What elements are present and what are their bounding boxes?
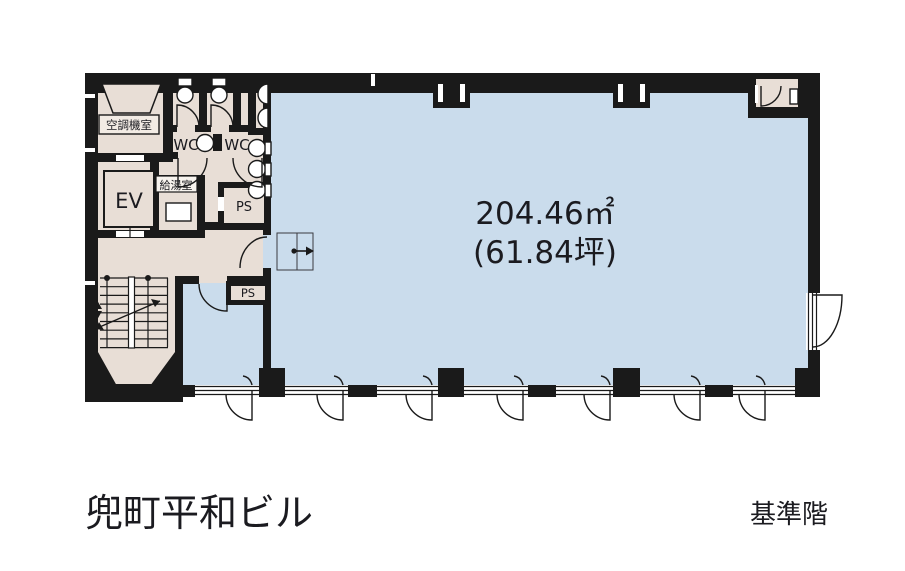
floorplan-page: 空調機室 EV 給湯室 WC WC PS PS 204.46㎡ (61.84坪)… [0,0,905,571]
wall-sink-stub [213,134,222,151]
floor-type-label: 基準階 [750,500,828,530]
label-kitchenette: 給湯室 [160,178,193,192]
wall-extension-top-left [175,276,199,284]
elevator-door-slot-top [116,155,144,161]
toilet-tank [265,184,271,197]
toilet-bowl [249,182,266,199]
wall-wc-front1 [163,125,177,132]
wall-wc-front2 [195,125,211,132]
leftwall-joint [85,148,95,152]
stair-newel-dot [104,275,110,281]
column-bottom-1 [438,368,464,397]
label-ps-upper: PS [236,200,252,215]
column-bottom-2 [613,368,640,397]
wall-right [808,93,820,397]
mullion-3 [705,385,733,397]
building-name: 兜町平和ビル [85,491,313,535]
toilet-bowl [249,161,266,178]
toilet-tank [265,163,271,176]
toilet-tank [212,78,226,86]
toilet-bowl [211,87,227,103]
topwall-joint [371,74,375,86]
wall-wcright-left [248,93,256,132]
mullion-2 [528,385,556,397]
ps-upper-slit [218,197,224,211]
wall-bottom-left-end [183,385,195,397]
pillar-slit [640,84,645,102]
alcove-wall-left [748,79,756,107]
alcove-wall-bottom [748,107,820,118]
wall-stairs-right [175,276,183,386]
alcove-wall-right [798,93,808,118]
column-extension-junction [259,368,285,397]
leftwall-joint [85,281,95,285]
pillar-slit [438,84,443,102]
label-ps-lower: PS [241,286,255,300]
right-window [806,293,820,350]
alcove-fixture [790,89,798,104]
kitchenette-sink [166,203,191,221]
mullion-1 [348,385,377,397]
stair-newel-dot [145,275,151,281]
wall-wc-front3 [229,125,248,132]
label-elevator: EV [115,189,143,213]
toilet-tank [265,142,271,155]
label-area-m2: 204.46㎡ [475,196,614,232]
wc-sink [197,135,214,152]
ac-machine-unit [102,84,161,113]
label-area-tsubo: (61.84坪) [473,235,617,271]
alcove-slit [755,85,758,103]
leftwall-joint [85,94,95,98]
wall-extension-top-right [227,276,271,284]
label-ac-room: 空調機室 [106,118,152,132]
wall-ev-bottom [85,230,205,238]
column-corner-br [795,368,820,397]
pillar-slit [618,84,623,102]
wall-bottom-understairs [85,384,183,402]
label-wc-left: WC [173,136,198,154]
floorplan-drawing: 空調機室 EV 給湯室 WC WC PS PS 204.46㎡ (61.84坪)… [0,0,905,571]
label-wc-right: WC [224,136,249,154]
pillar-slit [460,84,465,102]
toilet-bowl [177,87,193,103]
toilet-tank [178,78,192,86]
toilet-bowl [249,140,266,157]
